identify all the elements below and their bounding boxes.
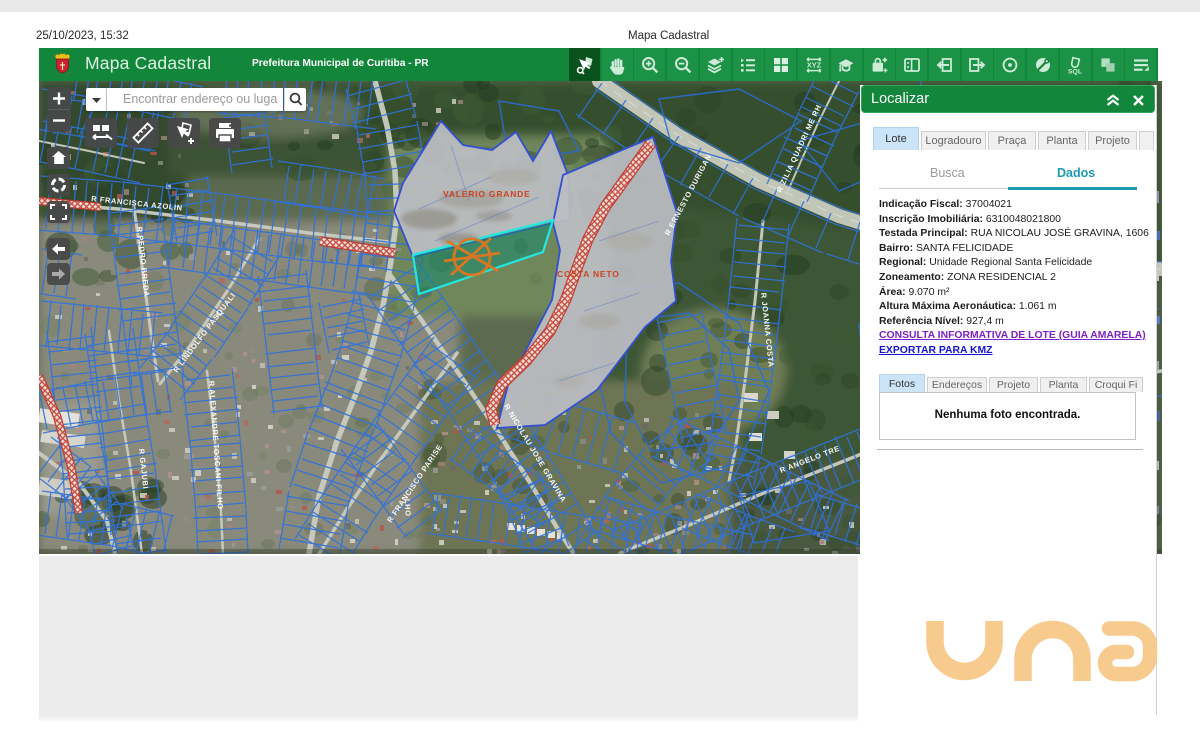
svg-text:LHO: LHO [403, 499, 413, 517]
svg-text:VALERIO GRANDE: VALERIO GRANDE [443, 189, 531, 199]
svg-text:COSTA NETO: COSTA NETO [557, 269, 620, 279]
svg-text:SQL: SQL [1068, 68, 1082, 75]
svg-text:XYZ: XYZ [806, 60, 821, 69]
